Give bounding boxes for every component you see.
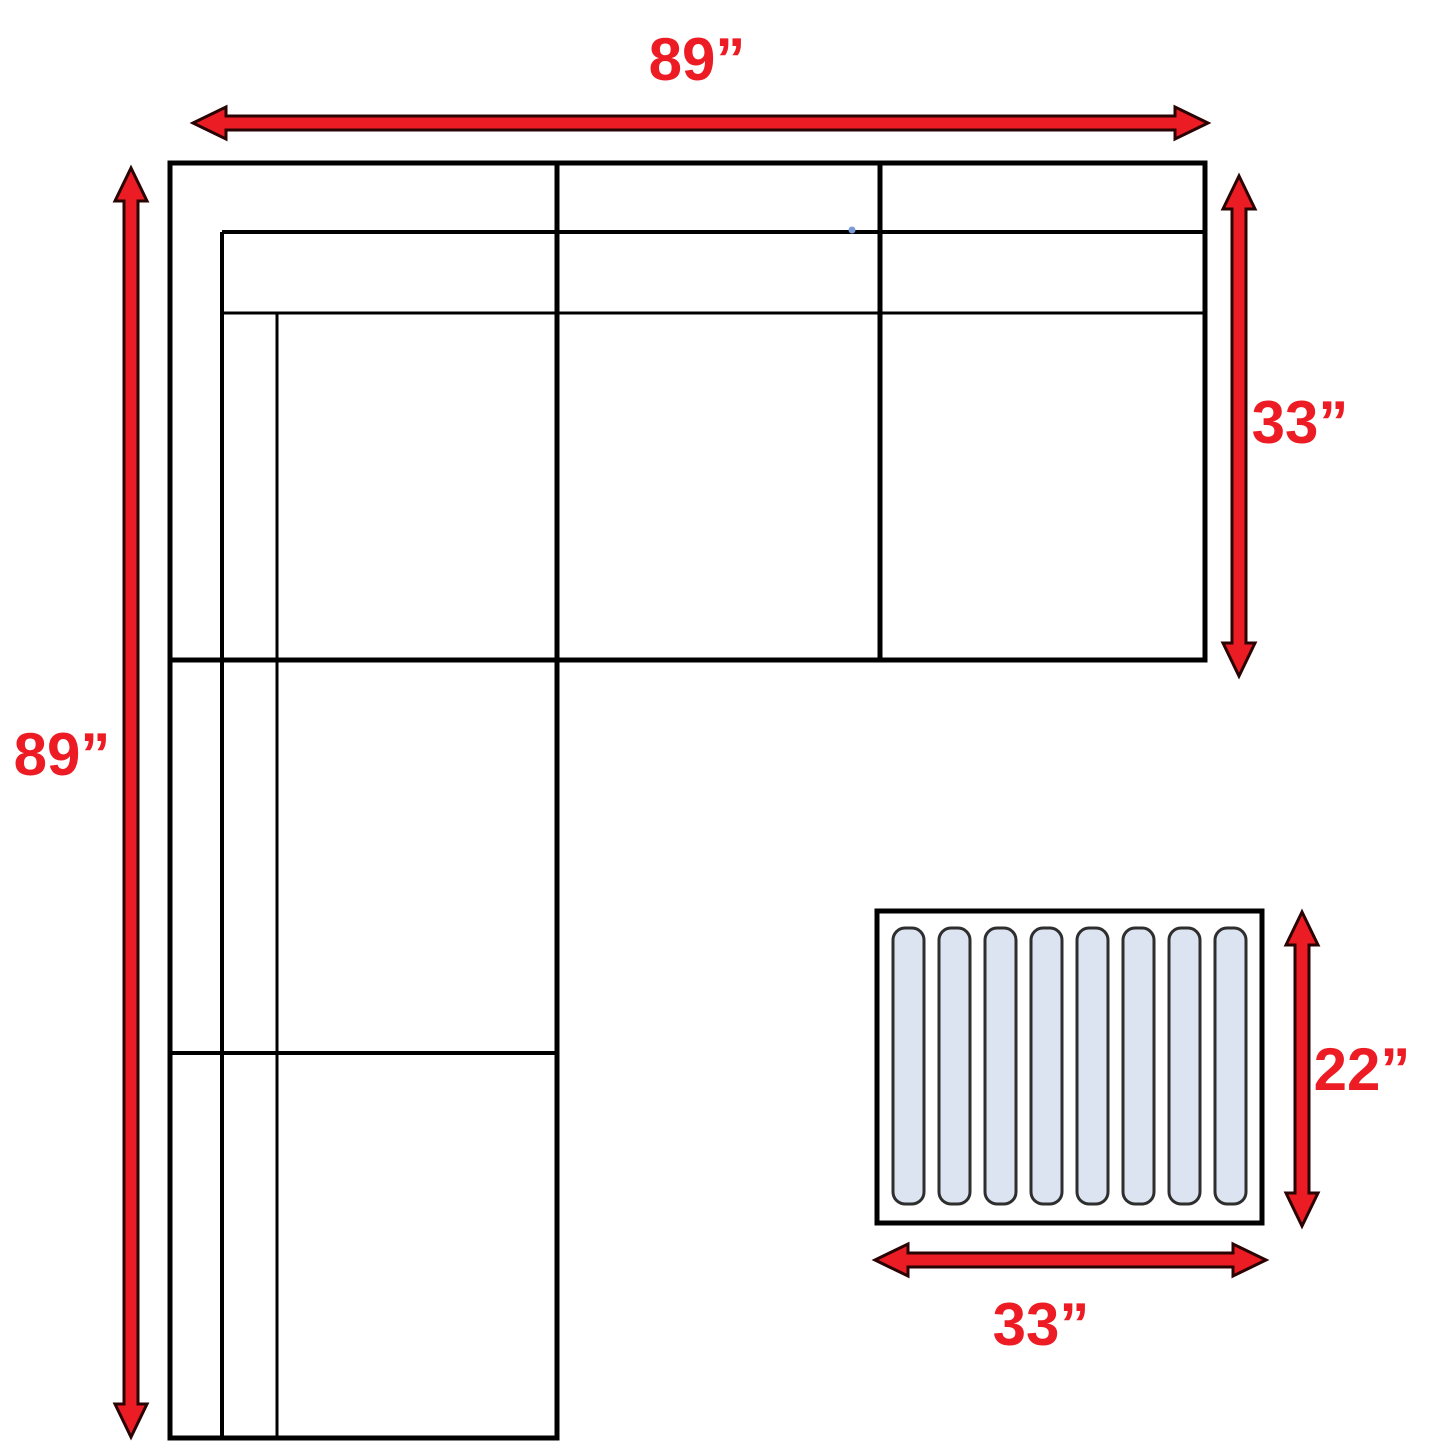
sectional-sofa-dimension-diagram: 89” 89” 33” 22” 33” [0,0,1445,1445]
blue-speck [849,227,856,234]
sofa-width-label: 89” [649,26,746,93]
ottoman-slat [1077,928,1108,1204]
ottoman-slat [1169,928,1200,1204]
diagram-canvas: 89” 89” 33” 22” 33” [0,0,1445,1445]
ottoman-slat [893,928,924,1204]
dimension-arrows [115,107,1318,1437]
ottoman-slat [1123,928,1154,1204]
sofa-depth-arrow [1223,176,1255,676]
ottoman-slat [1215,928,1246,1204]
sofa-depth-label: 33” [1252,389,1349,456]
ottoman-width-arrow [875,1244,1266,1276]
ottoman-plan [877,911,1262,1223]
ottoman-height-label: 22” [1314,1036,1411,1103]
sofa-width-arrow [193,107,1208,139]
ottoman-slat [939,928,970,1204]
sofa-plan [170,163,1205,1438]
sofa-height-label: 89” [14,721,111,788]
ottoman-slat [985,928,1016,1204]
ottoman-outline [877,911,1262,1223]
ottoman-width-label: 33” [993,1291,1090,1358]
sofa-outline [170,163,1205,1438]
sofa-height-arrow [115,168,147,1437]
ottoman-slat [1031,928,1062,1204]
